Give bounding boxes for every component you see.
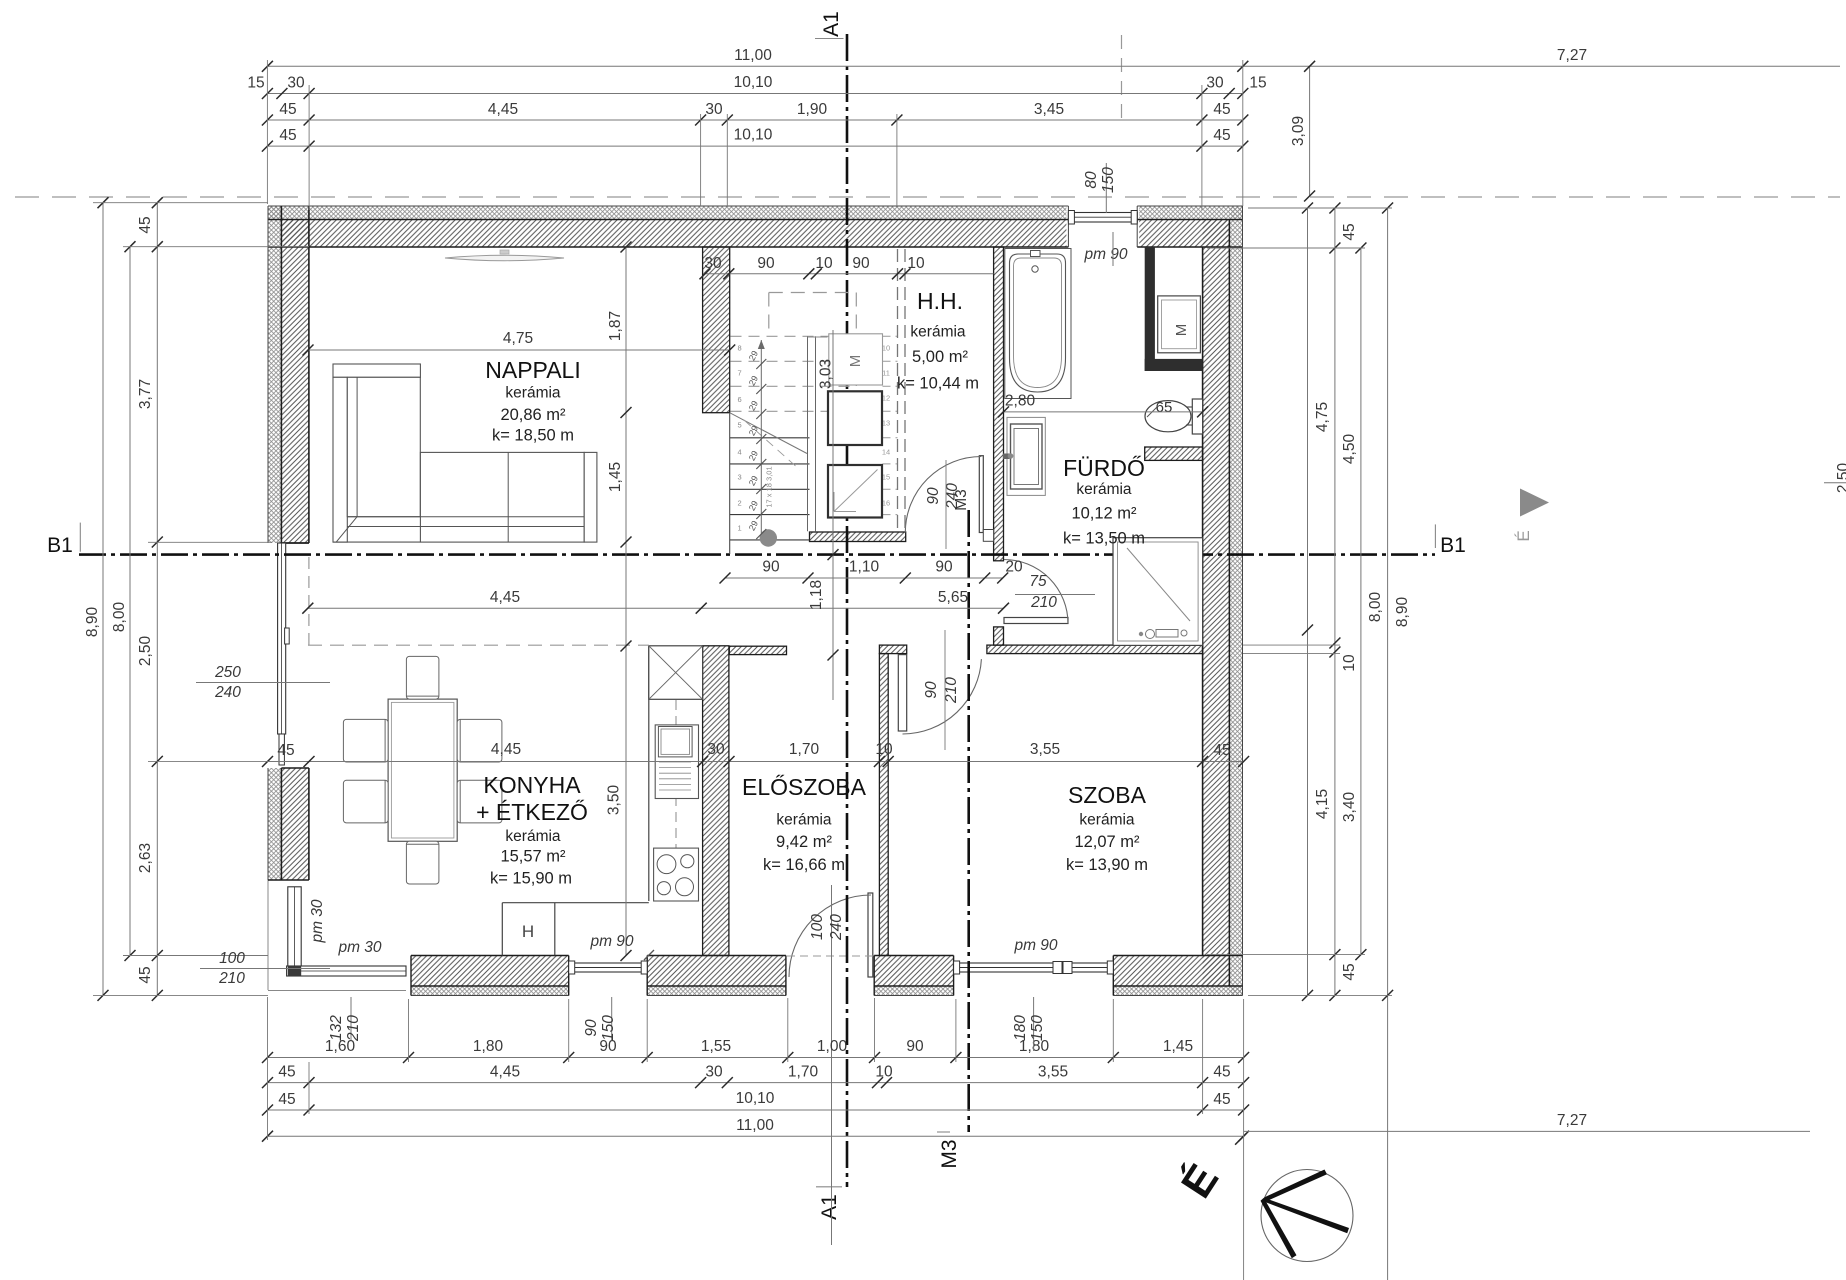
svg-text:NAPPALI: NAPPALI — [485, 357, 580, 383]
svg-text:+ ÉTKEZŐ: + ÉTKEZŐ — [476, 799, 588, 825]
svg-text:SZOBA: SZOBA — [1068, 782, 1147, 808]
svg-text:90: 90 — [852, 255, 870, 272]
svg-text:2: 2 — [738, 499, 742, 508]
svg-text:45: 45 — [277, 742, 294, 759]
svg-text:65: 65 — [1156, 399, 1173, 416]
svg-text:10,10: 10,10 — [734, 127, 773, 144]
svg-text:kerámia: kerámia — [910, 324, 966, 341]
svg-text:8,00: 8,00 — [111, 602, 128, 633]
svg-text:11,00: 11,00 — [736, 1117, 774, 1134]
svg-text:1,10: 1,10 — [849, 559, 880, 576]
svg-text:1,45: 1,45 — [1163, 1038, 1193, 1055]
svg-text:4,75: 4,75 — [503, 330, 533, 347]
svg-text:7,27: 7,27 — [1557, 47, 1587, 64]
svg-text:15,57 m²: 15,57 m² — [500, 848, 566, 866]
svg-text:M: M — [1173, 324, 1190, 337]
svg-text:132: 132 — [328, 1015, 345, 1041]
svg-text:150: 150 — [1100, 167, 1117, 193]
svg-text:10,12 m²: 10,12 m² — [1071, 505, 1137, 523]
svg-text:pm 90: pm 90 — [1013, 937, 1057, 954]
svg-text:100: 100 — [219, 950, 245, 967]
svg-text:11: 11 — [882, 369, 890, 378]
svg-text:M: M — [847, 355, 864, 368]
svg-text:8,00: 8,00 — [1367, 592, 1384, 623]
svg-text:7,27: 7,27 — [1557, 1112, 1587, 1129]
svg-text:k= 16,66 m: k= 16,66 m — [763, 856, 845, 874]
svg-text:14: 14 — [882, 447, 890, 456]
svg-text:45: 45 — [1213, 1064, 1230, 1081]
svg-text:210: 210 — [943, 677, 960, 704]
svg-text:45: 45 — [1213, 101, 1230, 118]
svg-text:90: 90 — [757, 255, 775, 272]
svg-text:9,42 m²: 9,42 m² — [776, 833, 832, 851]
svg-text:90: 90 — [762, 559, 780, 576]
svg-text:2,50: 2,50 — [137, 636, 154, 667]
svg-text:90: 90 — [923, 681, 940, 699]
svg-text:8,90: 8,90 — [1394, 597, 1411, 628]
svg-text:210: 210 — [1030, 594, 1057, 611]
svg-text:KONYHA: KONYHA — [483, 772, 581, 798]
svg-text:4,45: 4,45 — [490, 1064, 520, 1081]
svg-text:1,00: 1,00 — [817, 1038, 848, 1055]
svg-text:k= 18,50 m: k= 18,50 m — [492, 427, 574, 445]
svg-text:15: 15 — [247, 75, 264, 92]
svg-text:4,45: 4,45 — [490, 589, 520, 606]
svg-text:5: 5 — [738, 420, 742, 429]
svg-text:45: 45 — [1341, 963, 1358, 980]
svg-text:1,70: 1,70 — [789, 741, 820, 758]
svg-text:kerámia: kerámia — [505, 385, 561, 402]
svg-text:30: 30 — [287, 75, 305, 92]
svg-text:1,80: 1,80 — [473, 1038, 504, 1055]
svg-text:45: 45 — [279, 127, 296, 144]
svg-text:k= 13,50 m: k= 13,50 m — [1063, 530, 1145, 548]
svg-text:210: 210 — [218, 970, 245, 987]
svg-text:30: 30 — [705, 101, 723, 118]
svg-text:75: 75 — [1029, 573, 1047, 590]
svg-text:150: 150 — [600, 1015, 617, 1041]
svg-text:4,45: 4,45 — [491, 741, 521, 758]
svg-text:30: 30 — [1206, 75, 1224, 92]
svg-text:90: 90 — [925, 487, 942, 505]
svg-text:1,70: 1,70 — [788, 1064, 819, 1081]
svg-text:10: 10 — [875, 1064, 893, 1081]
svg-text:90: 90 — [906, 1038, 924, 1055]
svg-text:10: 10 — [1341, 654, 1358, 672]
svg-text:20,86 m²: 20,86 m² — [500, 406, 566, 424]
svg-text:4,75: 4,75 — [1314, 402, 1331, 432]
svg-text:90: 90 — [935, 559, 953, 576]
svg-text:3,40: 3,40 — [1341, 792, 1358, 823]
svg-text:H.H.: H.H. — [917, 288, 963, 314]
svg-text:3: 3 — [738, 472, 742, 481]
svg-text:10: 10 — [907, 255, 925, 272]
svg-text:4,50: 4,50 — [1341, 434, 1358, 465]
svg-text:12,07 m²: 12,07 m² — [1074, 833, 1140, 851]
svg-text:pm 90: pm 90 — [1083, 246, 1127, 263]
svg-text:3,50: 3,50 — [605, 785, 622, 816]
svg-text:10: 10 — [875, 741, 893, 758]
svg-text:pm 90: pm 90 — [589, 933, 633, 950]
svg-text:4,45: 4,45 — [488, 101, 518, 118]
svg-text:k= 15,90 m: k= 15,90 m — [490, 870, 572, 888]
svg-text:kerámia: kerámia — [776, 812, 832, 829]
svg-text:20: 20 — [1005, 559, 1023, 576]
svg-text:B1: B1 — [47, 534, 73, 557]
svg-text:6: 6 — [738, 395, 742, 404]
svg-text:2,50: 2,50 — [1835, 463, 1846, 494]
svg-text:3,55: 3,55 — [1038, 1064, 1068, 1081]
svg-text:17 x 18 3,01: 17 x 18 3,01 — [765, 466, 774, 507]
svg-text:1,45: 1,45 — [607, 462, 624, 492]
svg-text:A1: A1 — [820, 11, 843, 37]
svg-text:10,10: 10,10 — [736, 1090, 775, 1107]
svg-text:180: 180 — [1012, 1015, 1029, 1041]
svg-text:3,03: 3,03 — [818, 359, 835, 389]
svg-text:11,00: 11,00 — [734, 47, 772, 64]
svg-text:5,65: 5,65 — [938, 589, 968, 606]
svg-text:30: 30 — [704, 255, 722, 272]
svg-text:45: 45 — [1213, 127, 1230, 144]
svg-text:1,87: 1,87 — [607, 311, 624, 341]
svg-text:5,00 m²: 5,00 m² — [912, 348, 968, 366]
svg-text:3,77: 3,77 — [137, 379, 154, 409]
svg-text:ELŐSZOBA: ELŐSZOBA — [742, 774, 867, 800]
svg-text:250: 250 — [214, 664, 241, 681]
svg-text:M3: M3 — [938, 1139, 961, 1168]
svg-text:80: 80 — [1083, 171, 1100, 189]
svg-text:45: 45 — [1213, 1091, 1230, 1108]
svg-text:kerámia: kerámia — [505, 828, 561, 845]
svg-text:kerámia: kerámia — [1076, 481, 1132, 498]
svg-text:8: 8 — [738, 344, 742, 353]
svg-text:pm 30: pm 30 — [309, 899, 326, 943]
svg-text:1,55: 1,55 — [701, 1038, 731, 1055]
svg-text:3,45: 3,45 — [1034, 101, 1064, 118]
svg-text:45: 45 — [279, 101, 296, 118]
svg-text:k= 10,44 m: k= 10,44 m — [897, 375, 979, 393]
svg-text:10: 10 — [815, 255, 833, 272]
svg-text:4: 4 — [738, 447, 742, 456]
svg-text:8,90: 8,90 — [84, 607, 101, 638]
svg-text:45: 45 — [278, 1064, 295, 1081]
svg-text:pm 30: pm 30 — [337, 939, 381, 956]
svg-text:45: 45 — [1341, 223, 1358, 240]
svg-text:É: É — [1514, 530, 1533, 541]
svg-text:150: 150 — [1029, 1015, 1046, 1041]
svg-text:3,09: 3,09 — [1290, 116, 1307, 146]
svg-text:1: 1 — [738, 524, 742, 533]
svg-text:3,55: 3,55 — [1030, 741, 1060, 758]
svg-text:45: 45 — [137, 216, 154, 233]
svg-text:M3: M3 — [953, 489, 970, 511]
svg-text:kerámia: kerámia — [1079, 812, 1135, 829]
svg-text:45: 45 — [1213, 742, 1230, 759]
svg-text:2,63: 2,63 — [137, 843, 154, 873]
svg-text:45: 45 — [137, 966, 154, 983]
svg-text:30: 30 — [705, 1064, 723, 1081]
svg-text:45: 45 — [278, 1091, 295, 1108]
svg-text:7: 7 — [738, 369, 742, 378]
svg-text:FÜRDŐ: FÜRDŐ — [1063, 455, 1145, 481]
svg-text:1,90: 1,90 — [797, 101, 828, 118]
svg-text:210: 210 — [345, 1015, 362, 1042]
svg-text:10,10: 10,10 — [734, 74, 773, 91]
svg-text:4,15: 4,15 — [1314, 789, 1331, 819]
svg-text:H: H — [522, 922, 534, 941]
svg-text:2,80: 2,80 — [1005, 393, 1036, 410]
svg-text:k= 13,90 m: k= 13,90 m — [1066, 856, 1148, 874]
svg-text:A1: A1 — [818, 1194, 841, 1220]
svg-text:240: 240 — [828, 914, 845, 941]
svg-text:B1: B1 — [1440, 534, 1466, 557]
svg-text:100: 100 — [809, 914, 826, 940]
svg-text:90: 90 — [583, 1019, 600, 1037]
svg-text:15: 15 — [1249, 75, 1266, 92]
svg-text:1,18: 1,18 — [808, 580, 825, 610]
svg-text:10: 10 — [882, 344, 890, 353]
svg-text:240: 240 — [214, 684, 241, 701]
svg-text:30: 30 — [707, 741, 725, 758]
